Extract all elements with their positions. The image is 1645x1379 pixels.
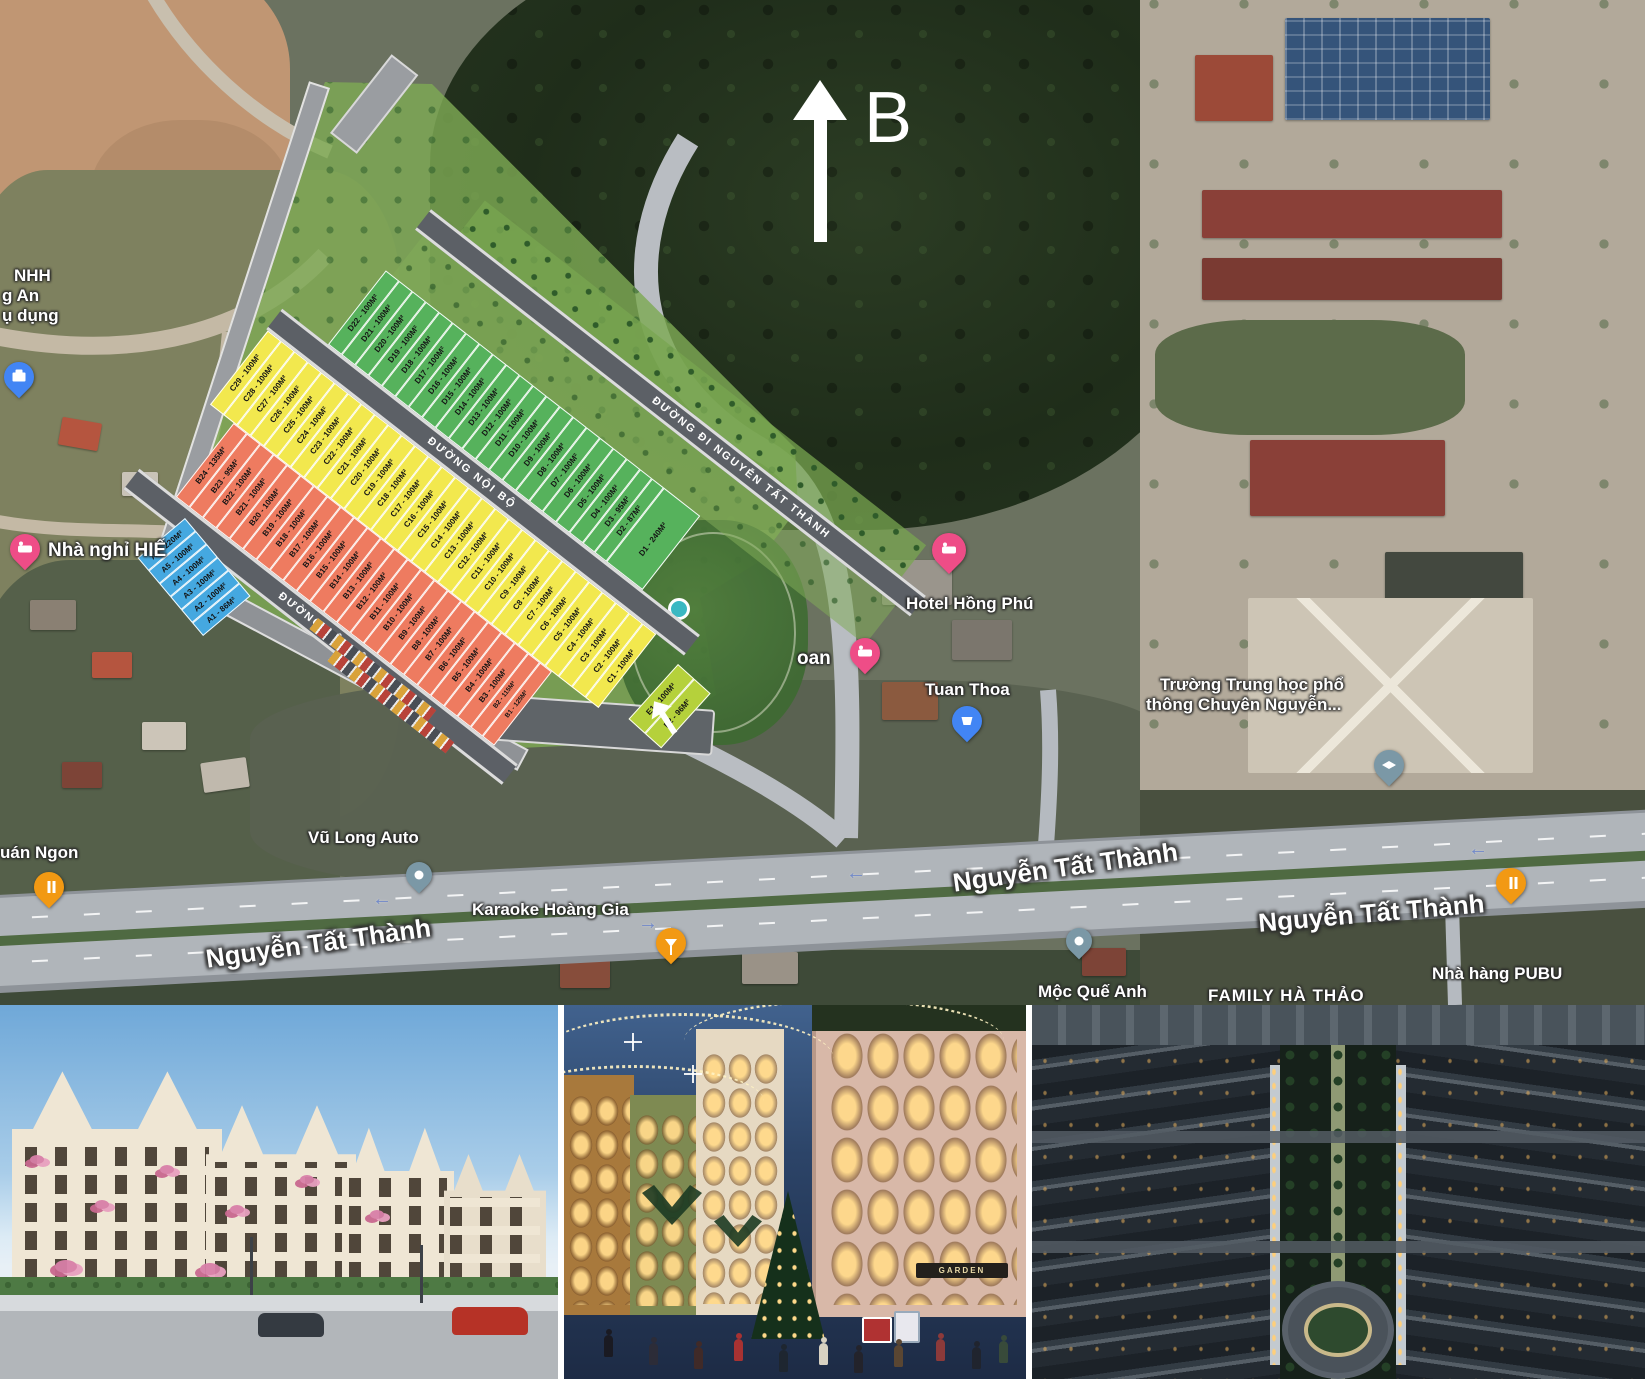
townhouse-row <box>12 1057 222 1297</box>
graduation-cap-icon <box>1382 761 1396 769</box>
windows <box>349 1178 448 1290</box>
person <box>936 1339 945 1361</box>
gift-box <box>862 1317 892 1343</box>
flower-planter <box>160 1165 174 1174</box>
cross-street <box>1032 1131 1645 1143</box>
dot-icon <box>1075 937 1084 946</box>
north-indicator: B <box>752 80 932 245</box>
guesthouse-label[interactable]: Nhà nghỉ HIẾ <box>48 540 166 562</box>
person <box>819 1343 828 1365</box>
bed-icon <box>18 546 32 553</box>
pubu-label[interactable]: Nhà hàng PUBU <box>1432 964 1562 984</box>
school-pin[interactable] <box>1374 750 1404 780</box>
photo-townhouses-day <box>0 1005 558 1379</box>
windows <box>215 1162 347 1288</box>
real-estate-masterplan-poster: ← ← ← → ĐƯỜNG ĐI NGUYỄN TẤT THÀNH D22 - … <box>0 0 1645 1379</box>
storefront-sign: GARDEN <box>916 1263 1008 1278</box>
briefcase-icon <box>13 373 26 382</box>
guesthouse-pin[interactable] <box>10 534 40 564</box>
dot-icon <box>415 871 424 880</box>
person <box>999 1341 1008 1363</box>
photo-shophouse-night: GARDEN <box>564 1005 1026 1379</box>
oneway-arrow-icon: ← <box>846 862 866 885</box>
lit-facade <box>1396 1065 1406 1365</box>
person <box>972 1347 981 1369</box>
flower-planter <box>55 1260 77 1273</box>
star-decoration-icon <box>684 1065 696 1077</box>
photo-aerial-estate-dusk <box>1032 1005 1645 1379</box>
bed-icon <box>858 650 872 657</box>
person <box>734 1339 743 1361</box>
hotel-oan-label[interactable]: oan <box>797 648 831 670</box>
oneway-arrow-icon: → <box>638 912 658 935</box>
person <box>604 1335 613 1357</box>
star-decoration-icon <box>624 1033 642 1051</box>
street-lamp <box>250 1237 253 1295</box>
townhouse-row <box>342 1117 454 1297</box>
hedge <box>0 1277 558 1297</box>
flower-planter <box>230 1205 244 1214</box>
karaoke-pin[interactable] <box>656 928 686 958</box>
person <box>694 1347 703 1369</box>
lit-facade <box>1270 1065 1280 1365</box>
quan-ngon-pin[interactable] <box>34 872 64 902</box>
townhouse-row <box>206 1093 356 1297</box>
credit-office-pin[interactable] <box>4 362 34 392</box>
cross-street <box>1032 1241 1645 1253</box>
person <box>854 1351 863 1373</box>
oneway-arrow-icon: ← <box>1468 838 1488 861</box>
hotel-hong-phu-pin[interactable] <box>932 533 966 567</box>
distant-buildings <box>1032 1005 1645 1045</box>
credit-office-label[interactable]: NHH g An ụ dụng <box>14 266 59 326</box>
person <box>779 1350 788 1372</box>
hotel-oan-pin[interactable] <box>850 638 880 668</box>
person <box>894 1345 903 1367</box>
moc-que-anh-label[interactable]: Mộc Quế Anh <box>1038 982 1147 1002</box>
vu-long-auto-label[interactable]: Vũ Long Auto <box>308 828 419 848</box>
hotel-hong-phu-label[interactable]: Hotel Hồng Phú <box>906 594 1033 614</box>
townhouse-row <box>444 1145 546 1297</box>
townhouse-block-left <box>1032 1045 1280 1379</box>
windows <box>25 1139 210 1288</box>
tuan-thoa-label[interactable]: Tuan Thoa <box>925 680 1010 700</box>
red-car <box>452 1307 528 1335</box>
townhouse-block-right <box>1396 1045 1645 1379</box>
restaurant-icon <box>1510 877 1513 889</box>
shopping-cart-icon <box>962 717 973 725</box>
family-ha-thao-label[interactable]: FAMILY HÀ THẢO <box>1208 986 1365 1005</box>
north-arrow-icon <box>814 114 827 242</box>
flower-planter <box>95 1200 109 1209</box>
render-photo-strip: GARDEN <box>0 1005 1645 1379</box>
flower-planter <box>370 1210 384 1219</box>
satellite-map[interactable]: ← ← ← → ĐƯỜNG ĐI NGUYỄN TẤT THÀNH D22 - … <box>0 0 1645 1005</box>
quan-ngon-label[interactable]: uán Ngon <box>0 843 78 863</box>
cocktail-icon <box>665 939 677 947</box>
flower-planter <box>200 1263 220 1275</box>
moc-que-anh-pin[interactable] <box>1066 928 1092 954</box>
north-letter: B <box>864 82 912 154</box>
tuan-thoa-pin[interactable] <box>952 706 982 736</box>
karaoke-label[interactable]: Karaoke Hoàng Gia <box>472 900 629 920</box>
restaurant-icon <box>48 881 51 893</box>
flower-planter <box>30 1155 44 1164</box>
oneway-arrow-icon: ← <box>372 888 392 911</box>
vu-long-auto-pin[interactable] <box>406 862 432 888</box>
bed-icon <box>942 547 956 554</box>
lot-label: D1 - 240M² <box>637 520 669 557</box>
street-lamp <box>420 1245 423 1303</box>
school-label[interactable]: Trường Trung học phổ thông Chuyên Nguyễn… <box>1160 675 1344 715</box>
dark-car <box>258 1313 324 1337</box>
pubu-pin[interactable] <box>1496 868 1526 898</box>
roundabout <box>1282 1281 1394 1379</box>
person <box>649 1343 658 1365</box>
flower-planter <box>300 1175 314 1184</box>
